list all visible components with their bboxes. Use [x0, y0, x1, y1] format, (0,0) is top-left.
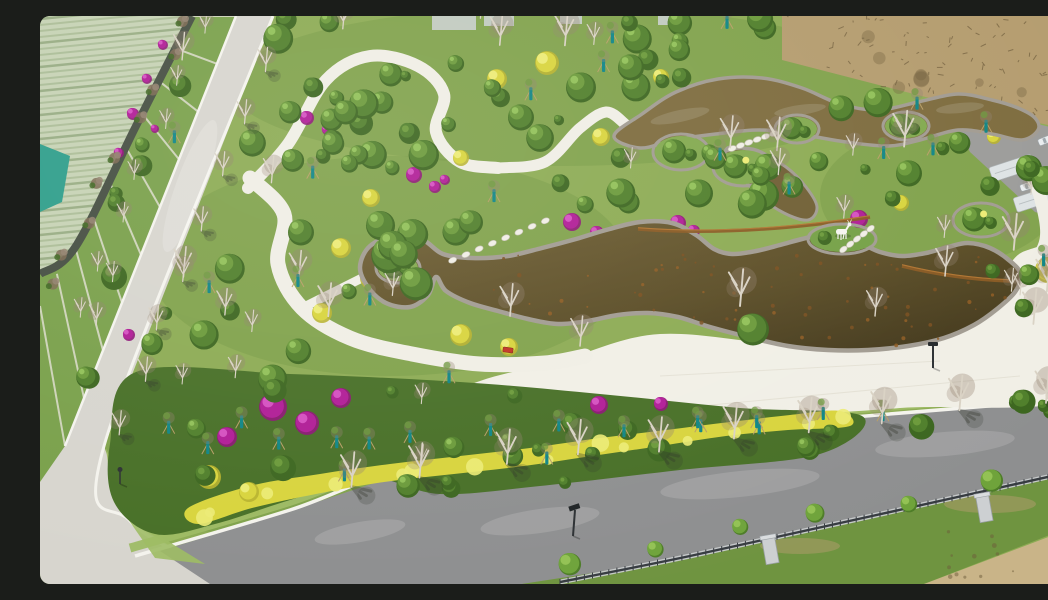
light-overlay: [40, 16, 1048, 584]
park-scene: [40, 16, 1048, 584]
park-scene-svg: [40, 16, 1048, 584]
aerial-park-photo: [40, 16, 1048, 584]
